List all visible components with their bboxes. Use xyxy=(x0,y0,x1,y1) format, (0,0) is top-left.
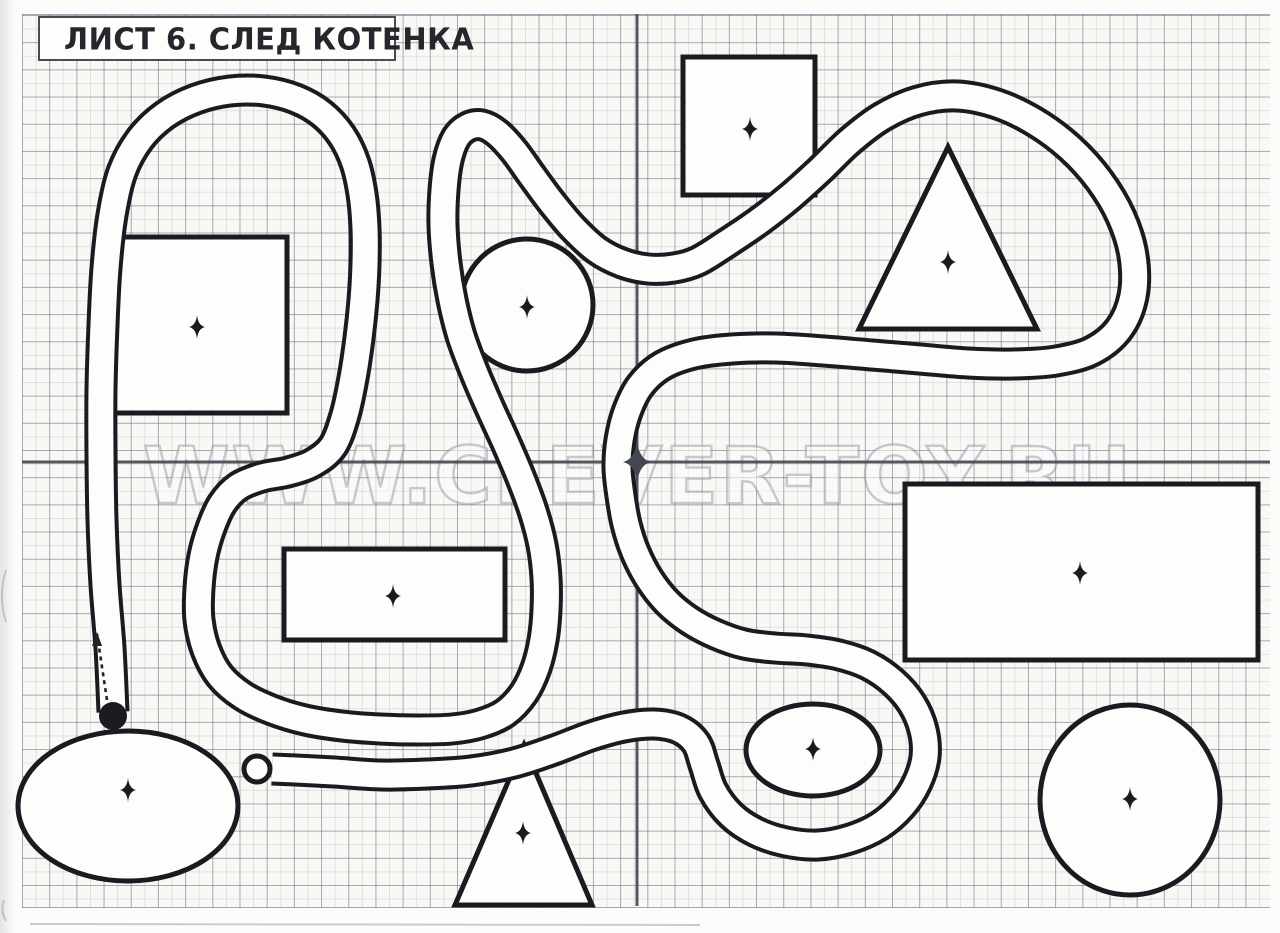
start-dot-marker xyxy=(99,702,127,730)
worksheet-page: WWW.CLEVER-TOY.RU ЛИСТ 6. СЛЕД КОТЕНКА xyxy=(0,0,1280,933)
end-circle-marker xyxy=(244,756,270,782)
scan-mark xyxy=(30,924,700,925)
scan-mark xyxy=(2,900,6,921)
shape-ellipse-bottom-left xyxy=(18,731,238,881)
page-title: ЛИСТ 6. СЛЕД КОТЕНКА xyxy=(40,21,474,56)
shape-triangle-top-right xyxy=(859,147,1037,329)
scan-mark xyxy=(2,570,6,622)
maze-canvas: WWW.CLEVER-TOY.RU xyxy=(0,0,1280,933)
title-box: ЛИСТ 6. СЛЕД КОТЕНКА xyxy=(38,16,396,61)
